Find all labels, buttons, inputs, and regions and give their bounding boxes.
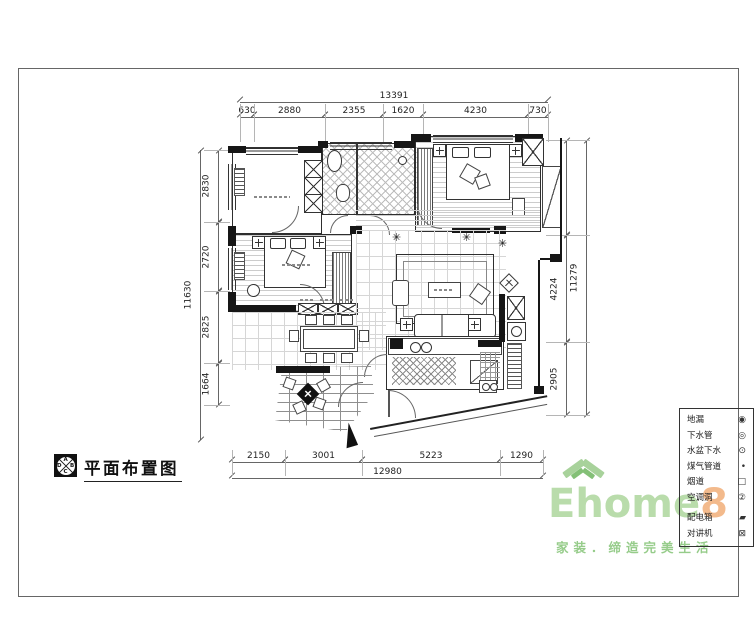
dim-right-seg: 2905 [566, 342, 567, 415]
dining-chair [359, 330, 369, 342]
extension-line [548, 104, 549, 142]
cabinet-label-scribble [340, 299, 354, 301]
wall-segment [411, 134, 431, 142]
washbasin [327, 150, 342, 172]
logo-letter: D [57, 464, 62, 470]
dim-label: 2355 [343, 107, 366, 116]
washing-machine [507, 322, 526, 341]
legend-row: 配电箱▰ [680, 511, 753, 527]
dim-top-seg: 1620 [383, 117, 423, 118]
extension-line [546, 342, 590, 343]
dim-top-seg: 2355 [325, 117, 383, 118]
dining-chair [289, 330, 299, 342]
intercom-icon: ⊠ [738, 528, 746, 542]
legend-label: 对讲机 [687, 528, 713, 541]
title-block: A B C D 平面布置图 [54, 452, 214, 482]
sink-bowl [421, 342, 432, 353]
extension-line [254, 104, 255, 142]
dim-label: 11630 [185, 281, 194, 310]
dining-chair [323, 353, 335, 363]
closet [507, 296, 525, 320]
ac-hole-icon: ② [738, 492, 746, 506]
legend-row: 地漏◉ [680, 413, 753, 429]
dining-table-inner [303, 329, 355, 349]
closet [522, 138, 544, 166]
dim-label: 4224 [551, 277, 560, 300]
sofa [414, 314, 496, 338]
exterior-wall [538, 260, 540, 390]
bay-door [542, 166, 562, 228]
wall-segment [232, 305, 296, 312]
extension-line [500, 450, 501, 476]
wall-segment [228, 146, 246, 153]
extension-line [232, 450, 233, 476]
extension-line [204, 150, 230, 151]
dim-bottom-seg: 3001 [285, 462, 362, 463]
dim-bottom-seg: 1290 [500, 462, 543, 463]
dim-label: 5223 [420, 452, 443, 461]
toilet [336, 184, 350, 202]
extension-line [204, 405, 230, 406]
nightstand-lamp [313, 236, 326, 249]
room-label-scribble [254, 196, 290, 198]
legend-row: 煤气管道• [680, 460, 753, 476]
sink-bowl [490, 383, 498, 391]
dim-label: 1664 [203, 373, 212, 396]
cabinet [304, 194, 323, 213]
nightstand-lamp [509, 144, 522, 157]
dim-right-seg: 4224 [566, 235, 567, 342]
plant-icon: ✳ [392, 232, 401, 243]
counter-hatch [392, 357, 456, 385]
dim-right-total: 11279 [586, 140, 587, 415]
dim-label: 2825 [203, 316, 212, 339]
extension-line [362, 450, 363, 476]
pillow [452, 147, 469, 158]
legend-label: 空调洞 [687, 492, 713, 505]
dim-label: 4230 [464, 107, 487, 116]
plant-icon: ✳ [498, 238, 507, 249]
dim-label: 3001 [312, 452, 335, 461]
armchair [392, 280, 409, 306]
legend-label: 煤气管道 [687, 461, 721, 474]
nightstand-lamp [433, 144, 446, 157]
cabinet-label-scribble [320, 299, 334, 301]
dim-top-seg: 4230 [423, 117, 528, 118]
flue-icon: □ [737, 476, 746, 490]
entry-door-leaf [388, 390, 390, 417]
drain-pipe-icon: ◎ [738, 430, 746, 444]
dim-bottom-seg: 2150 [232, 462, 285, 463]
extension-line [325, 104, 326, 142]
dining-chair [305, 353, 317, 363]
dim-label: 2830 [203, 175, 212, 198]
nightstand-lamp [252, 236, 265, 249]
drying-rack [507, 343, 522, 389]
compass-logo-icon: A B C D [54, 454, 77, 477]
dim-label: 2150 [247, 452, 270, 461]
sink-bowl [410, 342, 421, 353]
tile-floor [480, 352, 500, 380]
sink-bowl [482, 383, 490, 391]
dim-top-seg: 730 [528, 117, 548, 118]
dim-top-seg: 2880 [254, 117, 325, 118]
extension-line [285, 450, 286, 476]
dining-chair [323, 315, 335, 325]
extension-line [546, 235, 590, 236]
logo-letter: B [70, 464, 74, 470]
legend-label: 配电箱 [687, 512, 713, 525]
extension-line [204, 222, 230, 223]
pillow [474, 147, 491, 158]
pillow [290, 238, 306, 249]
side-table-lamp [468, 318, 481, 331]
legend-row: 烟道□ [680, 475, 753, 491]
label-scribble [434, 289, 452, 291]
window [433, 135, 513, 143]
dim-label: 12980 [373, 468, 402, 477]
legend: 地漏◉ 下水管◎ 水盆下水⊙ 煤气管道• 烟道□ 空调洞② 配电箱▰ 对讲机⊠ [679, 408, 754, 547]
dim-bottom-total: 12980 [232, 478, 543, 479]
dining-chair [305, 315, 317, 325]
radiator [234, 168, 245, 196]
dim-label: 730 [529, 107, 546, 116]
dim-label: 1620 [392, 107, 415, 116]
room-label-scribble [282, 264, 312, 266]
extension-line [383, 104, 384, 142]
dim-label: 2880 [278, 107, 301, 116]
dim-left-seg: 2825 [218, 291, 219, 363]
drawing-title: 平面布置图 [84, 455, 182, 482]
corridor [356, 210, 540, 230]
pillow [270, 238, 286, 249]
gas-pipe-icon: • [741, 461, 746, 475]
cabinet-label-scribble [300, 299, 314, 301]
legend-row: 空调洞② [680, 491, 753, 507]
dining-chair [341, 353, 353, 363]
shower-head [398, 156, 407, 165]
dim-left-seg: 2830 [218, 150, 219, 222]
basin-drain-icon: ⊙ [738, 445, 746, 459]
legend-row: 水盆下水⊙ [680, 444, 753, 460]
legend-label: 下水管 [687, 430, 713, 443]
dim-label: 11279 [571, 263, 580, 292]
legend-label: 烟道 [687, 476, 704, 489]
window [246, 147, 298, 155]
extension-line [240, 104, 241, 142]
wall-segment [318, 141, 328, 148]
wall-segment [499, 294, 505, 342]
legend-label: 水盆下水 [687, 445, 721, 458]
radiator [234, 252, 245, 280]
stool [247, 284, 260, 297]
extension-line [204, 363, 230, 364]
dim-right-seg: 3705 [566, 140, 567, 235]
dim-label: 13391 [380, 92, 409, 101]
dim-label: 2905 [551, 367, 560, 390]
dining-chair [341, 315, 353, 325]
plant-icon: ✳ [462, 232, 471, 243]
dim-left-seg: 2720 [218, 222, 219, 291]
dim-label: 1290 [510, 452, 533, 461]
side-table-lamp [400, 318, 413, 331]
exterior-wall [560, 138, 562, 262]
wall-segment [550, 254, 562, 262]
dim-label: 2720 [203, 245, 212, 268]
extension-line [546, 415, 590, 416]
wall-partition [356, 143, 358, 215]
legend-label: 地漏 [687, 414, 704, 427]
dim-top-total: 13391 [240, 102, 548, 103]
extension-line [543, 450, 544, 476]
stove [390, 338, 403, 349]
distribution-box-icon: ▰ [739, 512, 746, 526]
dim-left-seg: 1664 [218, 363, 219, 405]
floor-drain-icon: ◉ [738, 414, 746, 428]
logo-letter: C [64, 470, 68, 476]
dim-bottom-seg: 5223 [362, 462, 500, 463]
window [330, 142, 392, 150]
legend-row: 下水管◎ [680, 429, 753, 445]
logo-letter: A [64, 458, 68, 464]
extension-line [546, 140, 590, 141]
wall-segment [276, 366, 330, 373]
extension-line [204, 291, 230, 292]
legend-row: 对讲机⊠ [680, 527, 753, 543]
wall-segment [228, 232, 236, 246]
wall-segment [534, 386, 544, 394]
